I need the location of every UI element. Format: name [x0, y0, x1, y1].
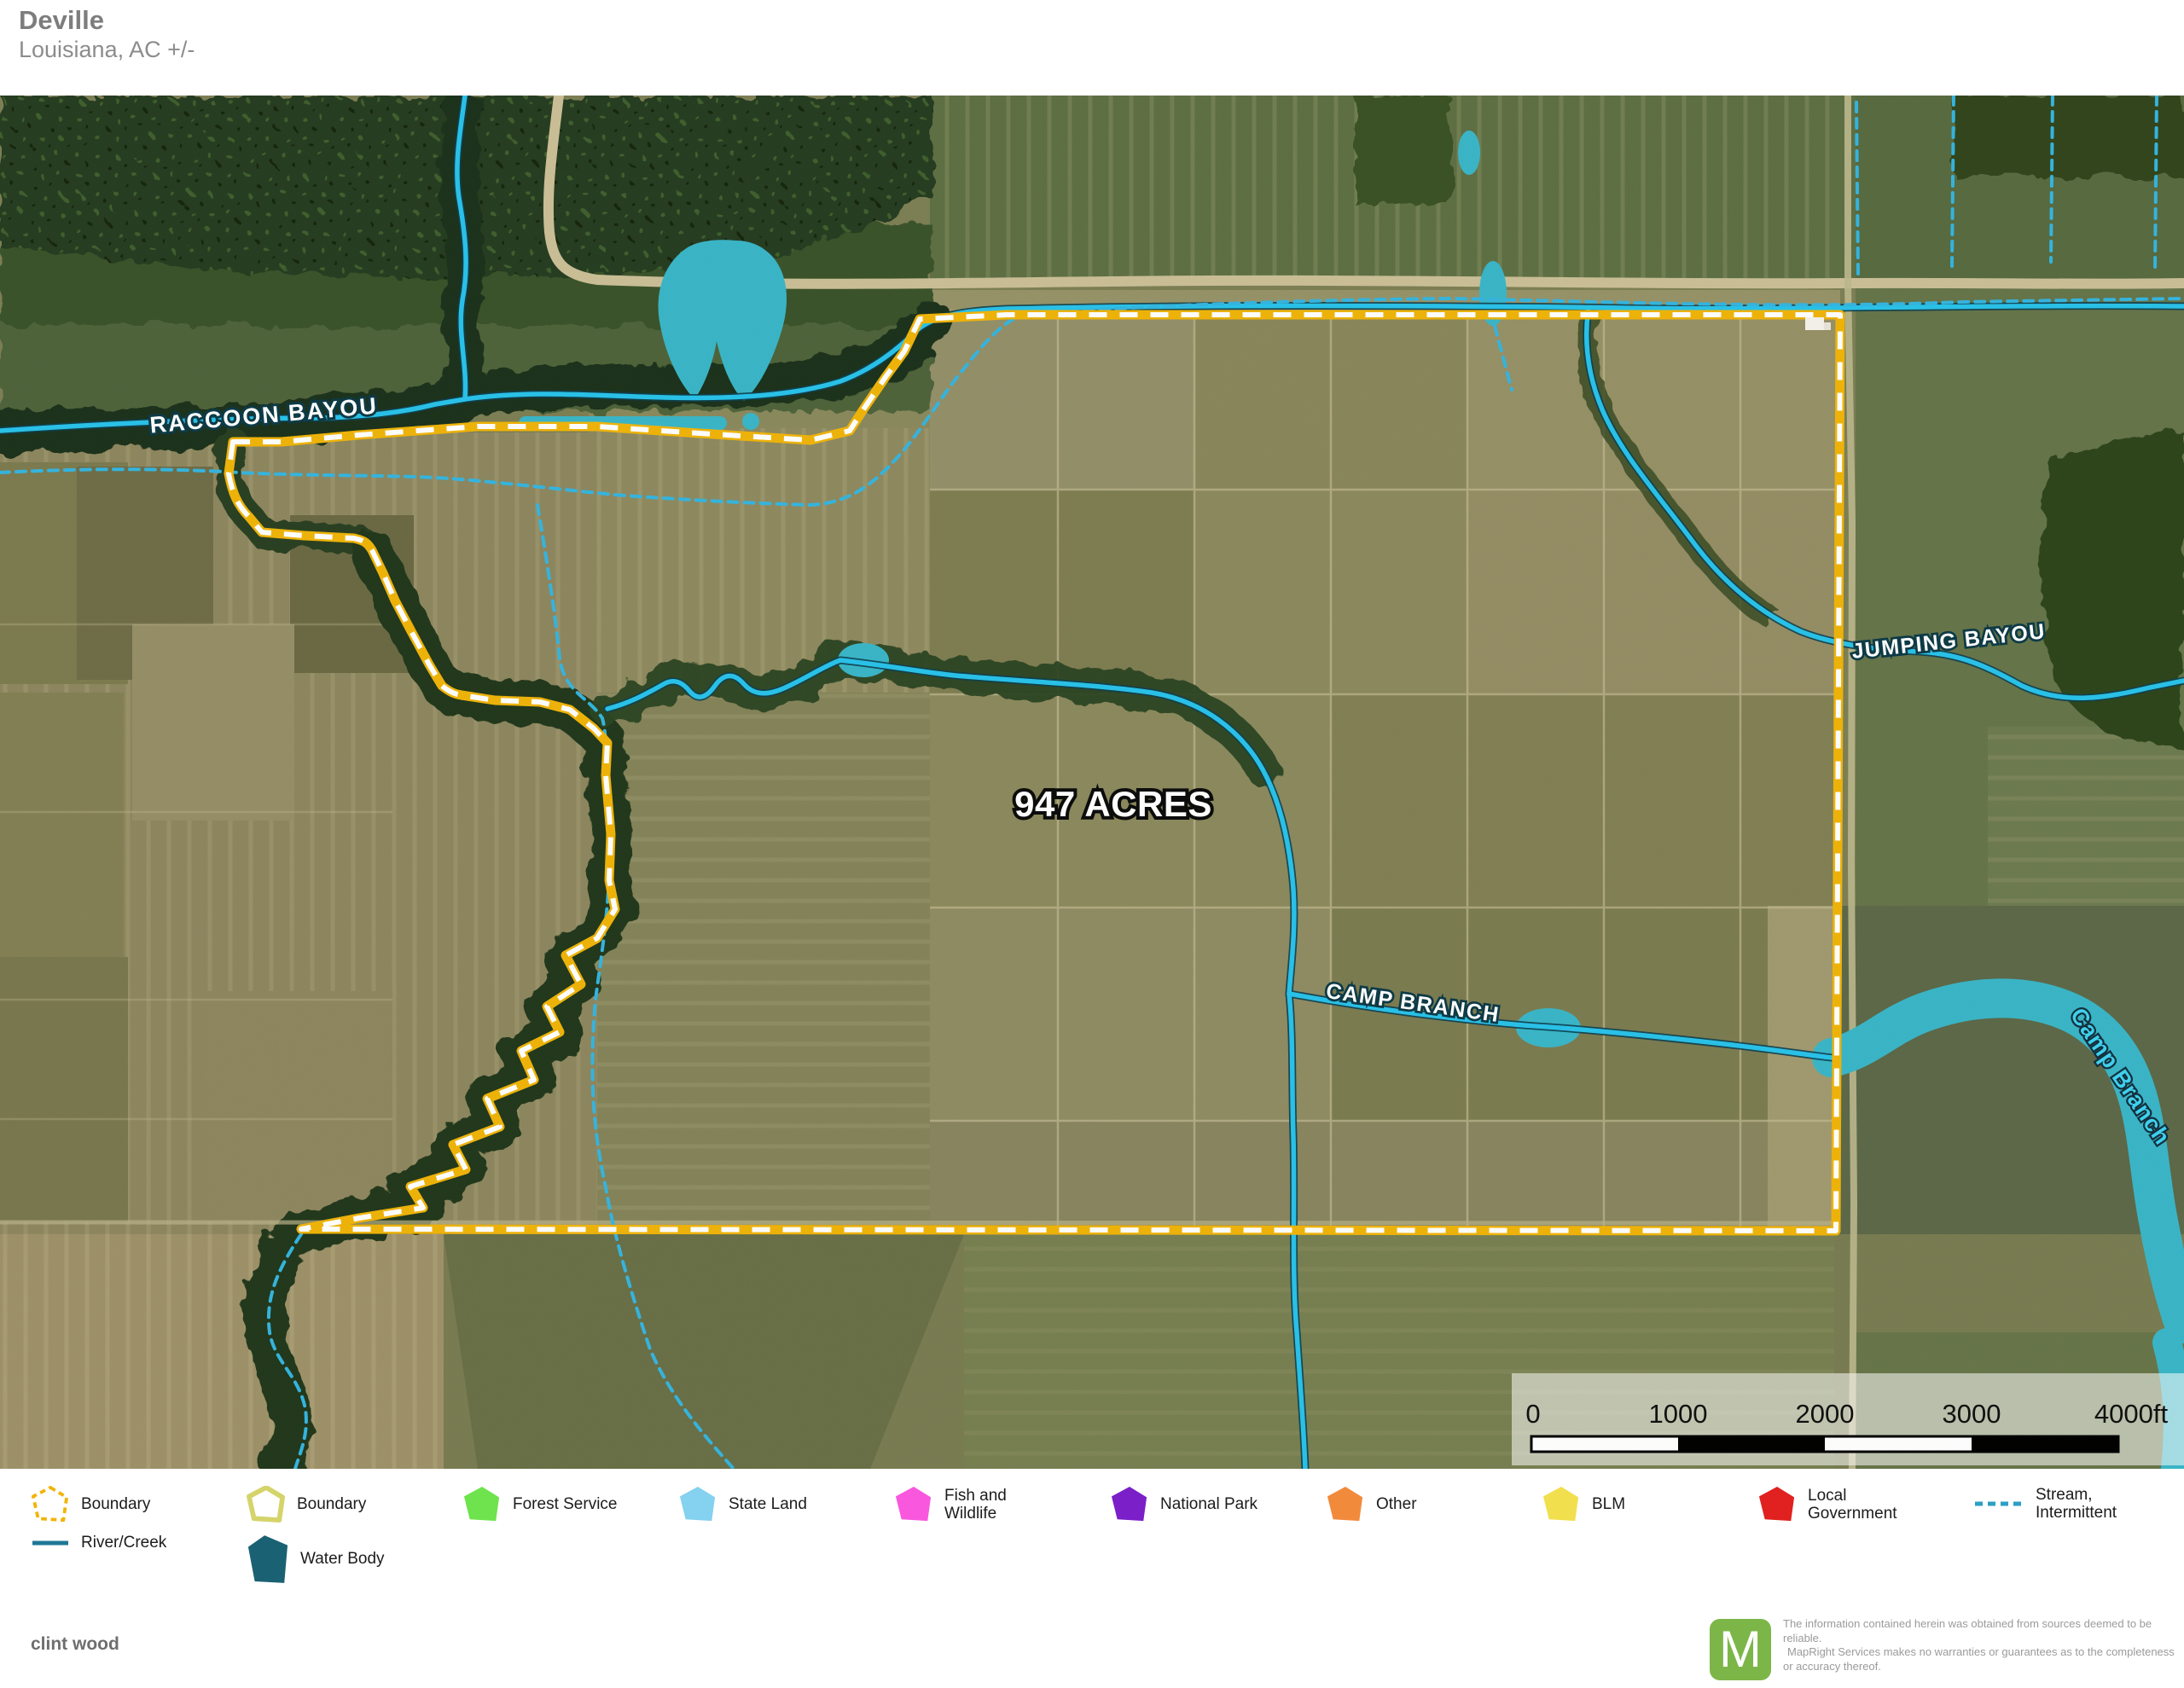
- legend-label: National Park: [1160, 1495, 1258, 1513]
- national-park-swatch-icon: [1110, 1486, 1149, 1523]
- disclaimer-line: MapRight Services makes no warranties or…: [1783, 1645, 2180, 1673]
- page-title: Deville: [19, 5, 195, 36]
- forest-service-swatch-icon: [462, 1486, 502, 1523]
- legend-item-local-government: Local Government: [1757, 1486, 1973, 1523]
- legend-label: Boundary: [297, 1495, 366, 1513]
- legend: Boundary Boundary Forest Service State L…: [0, 1469, 2184, 1615]
- legend-item-boundary-dashed: Boundary: [31, 1486, 247, 1523]
- footer: clint wood M The information contained h…: [0, 1615, 2184, 1688]
- legend-item-blm: BLM: [1542, 1486, 1757, 1523]
- legend-item-other: Other: [1326, 1486, 1542, 1523]
- satellite-grain: [0, 96, 2184, 1469]
- legend-item-boundary-solid: Boundary: [247, 1486, 462, 1523]
- legend-item-state-land: State Land: [678, 1486, 894, 1523]
- boundary-solid-swatch-icon: [247, 1486, 286, 1523]
- legend-row-1: Boundary Boundary Forest Service State L…: [0, 1469, 2184, 1523]
- map-header: Deville Louisiana, AC +/-: [19, 5, 195, 64]
- page-subtitle: Louisiana, AC +/-: [19, 36, 195, 65]
- legend-label: Boundary: [81, 1495, 150, 1513]
- legend-label: BLM: [1592, 1495, 1625, 1513]
- maplight-export-page: Deville Louisiana, AC +/-: [0, 0, 2184, 1688]
- disclaimer-line: The information contained herein was obt…: [1783, 1617, 2180, 1645]
- state-land-swatch-icon: [678, 1486, 717, 1523]
- legend-row-2: River/Creek Water Body: [0, 1523, 2184, 1585]
- river-creek-swatch-icon: [31, 1534, 70, 1552]
- local-government-swatch-icon: [1757, 1486, 1797, 1523]
- mapright-logo-letter: M: [1719, 1624, 1762, 1675]
- legend-label: Forest Service: [513, 1495, 617, 1513]
- map-canvas: RACCOON BAYOU JUMPING BAYOU CAMP BRANCH …: [0, 96, 2184, 1469]
- legend-label: Other: [1376, 1495, 1417, 1513]
- legend-label: State Land: [729, 1495, 807, 1513]
- satellite-map: RACCOON BAYOU JUMPING BAYOU CAMP BRANCH …: [0, 96, 2184, 1469]
- boundary-dashed-swatch-icon: [31, 1486, 70, 1523]
- blm-swatch-icon: [1542, 1486, 1581, 1523]
- legend-label: Stream, Intermittent: [2036, 1486, 2121, 1523]
- legend-item-national-park: National Park: [1110, 1486, 1326, 1523]
- legend-item-forest-service: Forest Service: [462, 1486, 678, 1523]
- legend-label: River/Creek: [81, 1534, 166, 1552]
- legend-item-stream-intermittent: Stream, Intermittent: [1973, 1486, 2184, 1523]
- legend-item-fish-and-wildlife: Fish and Wildlife: [894, 1486, 1110, 1523]
- legend-label: Fish and Wildlife: [944, 1487, 1016, 1523]
- fish-and-wildlife-swatch-icon: [894, 1486, 933, 1523]
- legend-item-river-creek: River/Creek: [31, 1534, 247, 1552]
- legend-label: Water Body: [300, 1550, 385, 1568]
- stream-intermittent-swatch-icon: [1973, 1495, 2024, 1512]
- disclaimer-text: The information contained herein was obt…: [1783, 1617, 2180, 1674]
- author-name: clint wood: [31, 1634, 119, 1655]
- mapright-logo: M: [1710, 1619, 1771, 1680]
- other-swatch-icon: [1326, 1486, 1365, 1523]
- legend-item-water-body: Water Body: [247, 1534, 462, 1585]
- legend-label: Local Government: [1808, 1487, 1893, 1523]
- water-body-swatch-icon: [247, 1534, 289, 1585]
